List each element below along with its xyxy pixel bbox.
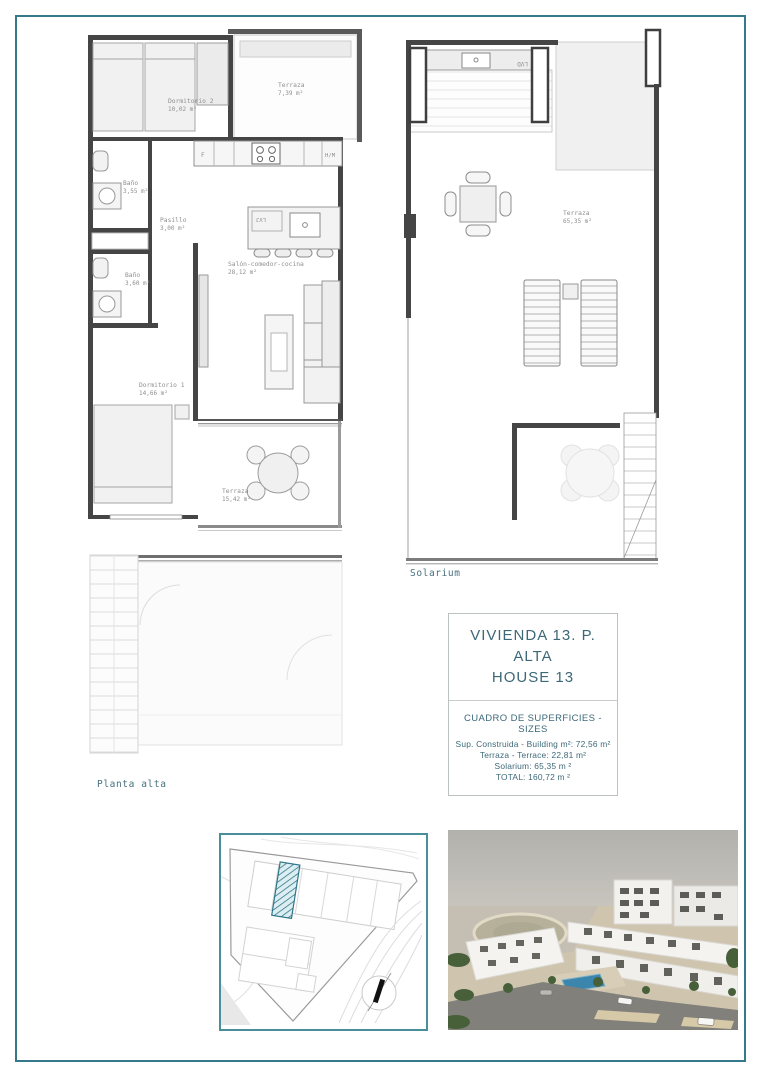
kitchen-island: LVJ	[248, 207, 340, 257]
oven-microwave-label: H/M	[325, 153, 336, 159]
eave-line2	[406, 563, 658, 564]
unit-title-line2: HOUSE 13	[451, 667, 615, 688]
surfaces-table-heading: CUADRO DE SUPERFICIES - SIZES	[451, 713, 615, 735]
tv-cabinet-icon	[199, 275, 208, 367]
ghost-table-icon	[561, 445, 619, 501]
eave-line	[406, 558, 658, 561]
room-label-bano2: Baño	[125, 272, 140, 279]
stool-icons	[254, 249, 333, 257]
bed-icon	[94, 405, 189, 503]
floorplan-planta-alta: F H/M LVJ	[82, 25, 362, 760]
surfaces-row-total: TOTAL: 160,72 m ²	[451, 772, 615, 783]
building-block-lower	[239, 927, 323, 992]
apartment-buildings	[614, 880, 738, 926]
room-area-terraza-solarium: 65,35 m²	[563, 218, 592, 225]
sun-lounger-icons	[524, 280, 617, 366]
fridge-label: F	[201, 152, 205, 159]
north-arrow	[362, 973, 396, 1011]
room-area-terraza-bottom: 15,42 m²	[222, 496, 251, 503]
dishwasher-label: LVJ	[256, 216, 266, 222]
room-label-pasillo: Pasillo	[160, 217, 187, 224]
room-label-terraza-solarium: Terraza	[563, 210, 590, 217]
room-area-salon: 28,12 m²	[228, 269, 257, 276]
unit-title: VIVIENDA 13. P. ALTA HOUSE 13	[449, 614, 617, 701]
sofa-icon	[304, 281, 340, 403]
toilet-icon	[93, 151, 108, 278]
room-label-dormitorio2: Dormitorio 2	[168, 98, 214, 105]
unit-title-line1: VIVIENDA 13. P. ALTA	[451, 625, 615, 667]
room-area-terraza-top: 7,39 m²	[278, 90, 303, 97]
terrace-edge	[198, 525, 342, 528]
room-label-terraza-bottom: Terraza	[222, 488, 249, 495]
shower-niche	[92, 233, 148, 249]
side-table-icon	[563, 284, 578, 299]
laundry-sink-icon	[462, 53, 490, 68]
plan-sheet-page: F H/M LVJ	[0, 0, 763, 1080]
pillar	[410, 48, 426, 122]
stove-icon	[252, 143, 280, 164]
terrace-table-icon	[247, 446, 309, 500]
bed-icon	[93, 43, 195, 131]
terrace-edge-line	[198, 530, 342, 531]
ghost-left-edge	[407, 318, 409, 558]
stairs-icon	[624, 413, 656, 559]
room-area-dormitorio1: 14,66 m²	[139, 390, 168, 397]
unit-info-box: VIVIENDA 13. P. ALTA HOUSE 13 CUADRO DE …	[448, 613, 618, 796]
surfaces-row-built: Sup. Construida - Building m²: 72,56 m²	[451, 739, 615, 750]
terrace-table-icon	[445, 172, 511, 236]
aerial-render-image	[448, 830, 738, 1030]
site-plan-box	[219, 833, 428, 1031]
surfaces-row-solarium: Solarium: 65,35 m ²	[451, 761, 615, 772]
room-area-dormitorio2: 10,02 m²	[168, 106, 197, 113]
room-area-bano1: 3,55 m²	[123, 188, 148, 195]
room-label-terraza-top: Terraza	[278, 82, 305, 89]
terrace-side-wall	[338, 421, 341, 528]
wardrobe-icon	[197, 43, 228, 105]
kitchen-counter: F H/M	[194, 141, 342, 166]
coffee-table-icon	[265, 315, 293, 389]
room-label-salon: Salón-comedor-cocina	[228, 260, 304, 268]
laundry-area: LVD	[406, 40, 558, 136]
surfaces-table: CUADRO DE SUPERFICIES - SIZES Sup. Const…	[449, 701, 617, 795]
pillar	[532, 48, 548, 122]
neighbor-roof-area	[556, 42, 658, 170]
site-plan-drawing	[221, 835, 422, 1025]
room-label-bano1: Baño	[123, 180, 138, 187]
road-band	[221, 983, 251, 1025]
pillar	[646, 30, 660, 86]
solarium-caption: Solarium	[410, 568, 461, 579]
surfaces-row-terrace: Terraza - Terrace: 22,81 m²	[451, 750, 615, 761]
floorplan-solarium: LVD	[400, 28, 745, 568]
bedroom1-window	[110, 515, 182, 519]
sliding-door	[198, 419, 342, 427]
room-area-bano2: 3,60 m²	[125, 280, 150, 287]
room-area-pasillo: 3,00 m²	[160, 225, 185, 232]
laundry-label: LVD	[517, 60, 528, 67]
planta-alta-caption: Planta alta	[97, 779, 167, 790]
room-label-dormitorio1: Dormitorio 1	[139, 382, 185, 389]
ghost-lower-level	[90, 555, 342, 753]
